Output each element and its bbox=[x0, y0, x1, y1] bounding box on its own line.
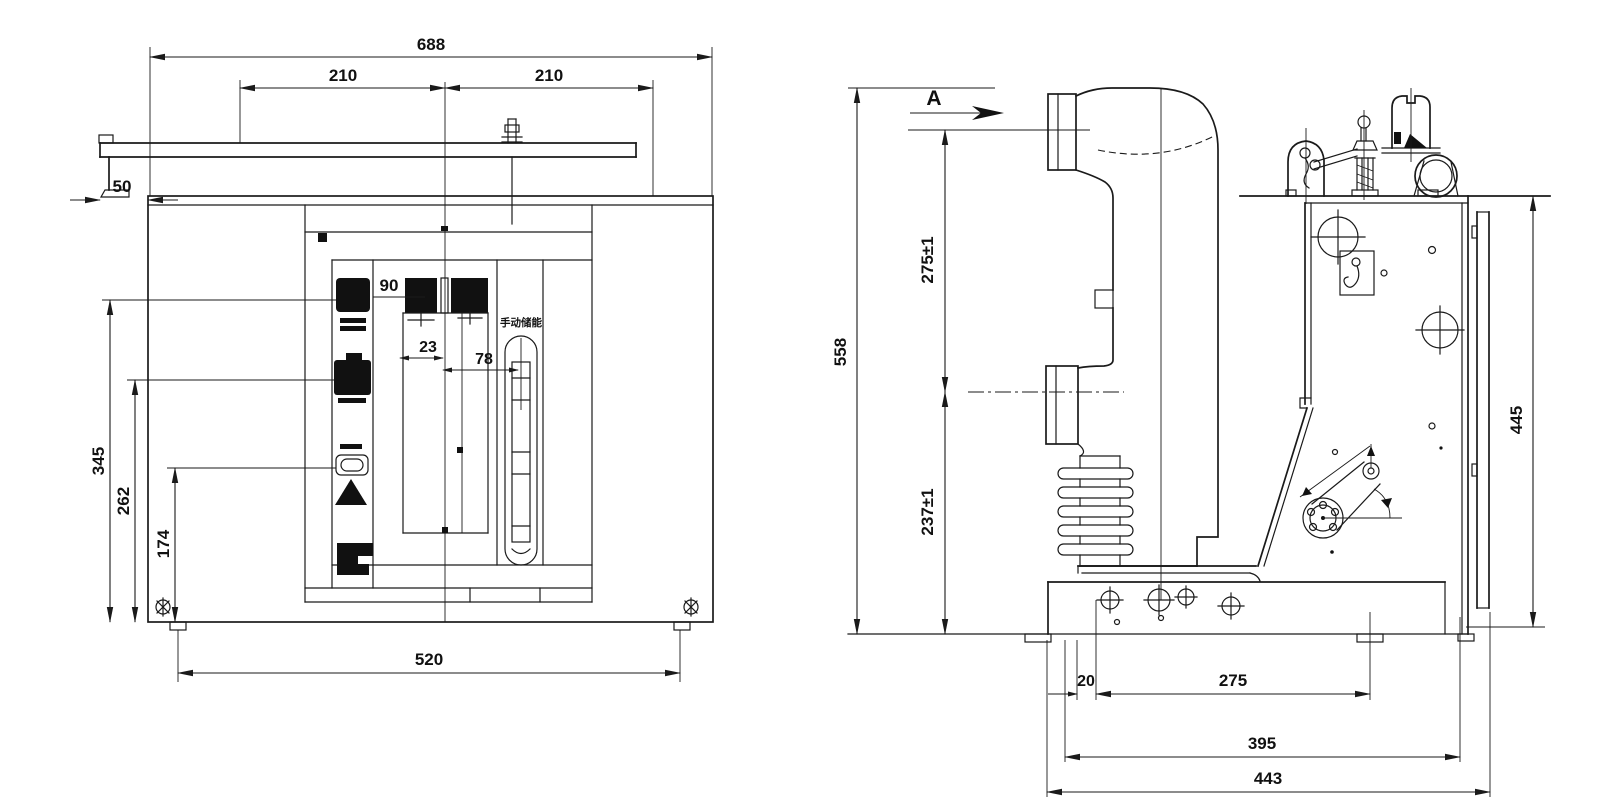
paper-background bbox=[0, 0, 1620, 808]
dim-443: 443 bbox=[1254, 769, 1282, 788]
dim-90: 90 bbox=[380, 276, 399, 295]
technical-drawing: 手动储能 688 bbox=[0, 0, 1620, 808]
dim-275-1: 275±1 bbox=[918, 236, 937, 283]
dim-558: 558 bbox=[831, 338, 850, 366]
block-right bbox=[451, 278, 488, 313]
section-label: A bbox=[926, 87, 941, 110]
dim-445: 445 bbox=[1507, 406, 1526, 434]
dim-210-left: 210 bbox=[329, 66, 357, 85]
dim-210-right: 210 bbox=[535, 66, 563, 85]
dim-395: 395 bbox=[1248, 734, 1276, 753]
block-left bbox=[405, 278, 437, 313]
dim-237-1: 237±1 bbox=[918, 488, 937, 535]
dim-78: 78 bbox=[475, 351, 493, 368]
dim-262: 262 bbox=[114, 487, 133, 515]
dim-50: 50 bbox=[113, 177, 132, 196]
dim-688: 688 bbox=[417, 35, 445, 54]
dim-23: 23 bbox=[419, 339, 437, 356]
nameplate-line-2 bbox=[340, 326, 366, 331]
energy-slot-label: 手动储能 bbox=[500, 316, 542, 329]
dim-345: 345 bbox=[89, 447, 108, 475]
button-open bbox=[336, 278, 370, 312]
dim-20: 20 bbox=[1077, 673, 1095, 690]
dim-275: 275 bbox=[1219, 671, 1247, 690]
button-close bbox=[334, 360, 371, 395]
dim-174: 174 bbox=[154, 529, 173, 558]
nameplate-line-1 bbox=[340, 318, 366, 323]
dim-520: 520 bbox=[415, 650, 443, 669]
